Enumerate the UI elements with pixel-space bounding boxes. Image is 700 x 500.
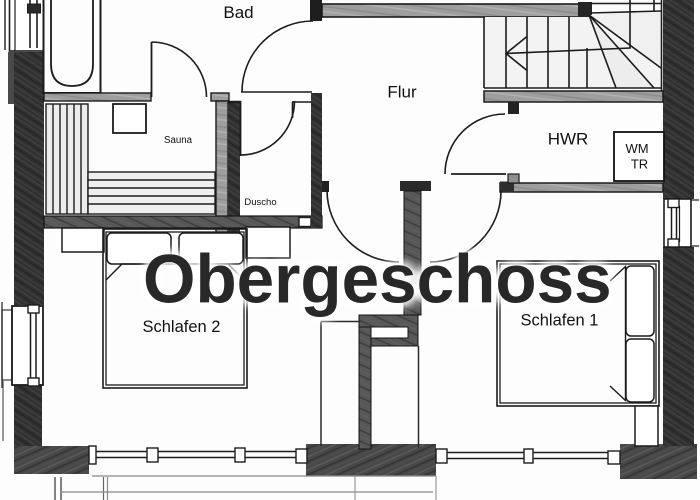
svg-text:WM: WM <box>625 141 648 156</box>
svg-text:Schlafen 2: Schlafen 2 <box>143 318 221 336</box>
svg-text:TR: TR <box>631 157 648 172</box>
svg-text:Bad: Bad <box>223 3 253 22</box>
svg-text:Duscho: Duscho <box>244 197 276 208</box>
svg-text:Sauna: Sauna <box>164 135 193 146</box>
svg-text:Obergeschoss: Obergeschoss <box>143 241 612 318</box>
svg-text:HWR: HWR <box>548 130 589 149</box>
svg-text:Flur: Flur <box>387 83 417 102</box>
